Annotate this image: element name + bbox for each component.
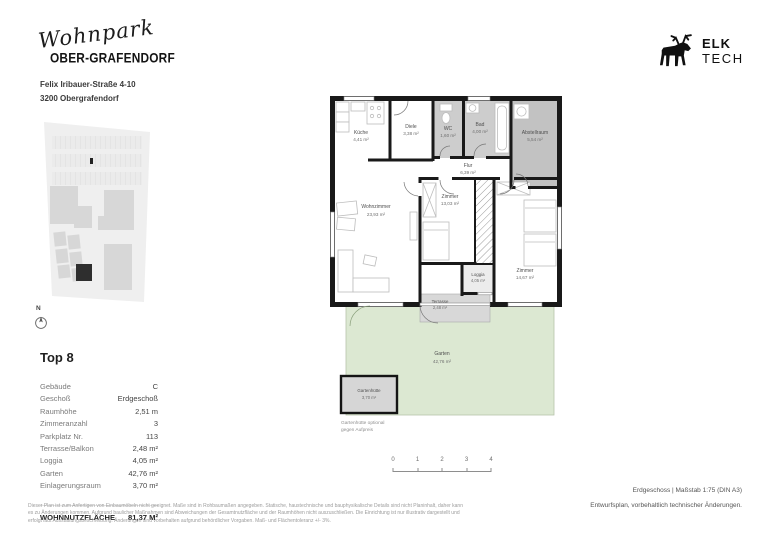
detail-row: Terrasse/Balkon2,48 m² <box>40 443 158 455</box>
stairwell <box>475 179 494 264</box>
address-line-2: 3200 Obergrafendorf <box>40 92 136 106</box>
label-loggia: Loggia <box>471 272 485 277</box>
elk-tech-wordmark: ELK TECH <box>702 36 744 66</box>
label-wohnzimmer: Wohnzimmer <box>361 204 391 210</box>
svg-text:4,05 m²: 4,05 m² <box>471 278 486 283</box>
svg-text:6,39 m²: 6,39 m² <box>460 170 476 175</box>
svg-text:42,76 m²: 42,76 m² <box>433 359 452 364</box>
detail-row: GeschoßErdgeschoß <box>40 393 158 405</box>
unit-details: Top 8 GebäudeC GeschoßErdgeschoß Raumhöh… <box>40 350 158 522</box>
svg-text:13,03 m²: 13,03 m² <box>441 201 460 206</box>
plan-info: Erdgeschoss | Maßstab 1:75 (DIN A3) <box>633 487 742 494</box>
elk-tech-logo: ELK TECH <box>652 28 762 76</box>
scale-bar: 0 1 2 3 4 <box>393 454 491 472</box>
project-address: Felix Iribauer-Straße 4-10 3200 Obergraf… <box>40 78 136 106</box>
floorplan-sheet: Wohnpark OBER-GRAFENDORF Felix Iribauer-… <box>0 0 770 544</box>
label-wc: WC <box>444 126 453 132</box>
svg-text:1,60 m²: 1,60 m² <box>440 133 456 138</box>
svg-text:2,48 m²: 2,48 m² <box>433 305 448 310</box>
parking-rows <box>52 136 142 185</box>
logo-line-tech: TECH <box>702 51 744 66</box>
label-zimmer-1: Zimmer <box>442 194 459 200</box>
logo-line-elk: ELK <box>702 36 744 51</box>
compass-label: N <box>36 305 41 312</box>
site-marker <box>90 158 93 164</box>
svg-text:4,41 m²: 4,41 m² <box>353 137 369 142</box>
address-line-1: Felix Iribauer-Straße 4-10 <box>40 78 136 92</box>
brand-name: OBER-GRAFENDORF <box>50 50 175 66</box>
label-terrasse: Terrasse <box>432 299 449 304</box>
svg-text:23,93 m²: 23,93 m² <box>367 212 386 217</box>
compass-icon <box>33 314 49 330</box>
detail-row: Einlagerungsraum3,70 m² <box>40 480 158 492</box>
svg-text:5,54 m²: 5,54 m² <box>527 137 543 142</box>
site-highlighted-unit <box>76 264 92 281</box>
label-abstellraum: Abstellraum <box>522 130 548 136</box>
svg-text:3,38 m²: 3,38 m² <box>403 131 419 136</box>
area-terrasse <box>420 294 490 322</box>
svg-text:14,67 m²: 14,67 m² <box>516 275 535 280</box>
detail-row: Zimmeranzahl3 <box>40 418 158 430</box>
label-bad: Bad <box>476 122 485 128</box>
label-kueche: Küche <box>354 130 368 136</box>
gartenhuette-note-line-1: Gartenhütte optional <box>341 420 384 426</box>
detail-row: Loggia4,05 m² <box>40 455 158 467</box>
label-diele: Diele <box>405 124 417 130</box>
plan-revision-note: Entwurfsplan, vorbehaltlich technischer … <box>590 502 742 509</box>
label-zimmer-2: Zimmer <box>517 268 534 274</box>
gartenhuette-note-line-2: gegen Aufpreis <box>341 427 374 433</box>
brand-script-wordmark: Wohnpark <box>37 15 156 53</box>
svg-text:3,70 m²: 3,70 m² <box>362 395 377 400</box>
label-gartenhuette: Gartenhütte <box>357 388 381 393</box>
elk-icon <box>652 32 698 72</box>
unit-title: Top 8 <box>40 350 158 365</box>
legal-disclaimer: Dieser Plan ist zum Anfertigen von Einba… <box>28 503 466 525</box>
site-plan <box>30 112 180 312</box>
floor-plan: Küche 4,41 m² Diele 3,38 m² WC 1,60 m² B… <box>328 92 564 438</box>
svg-text:4,00 m²: 4,00 m² <box>472 129 488 134</box>
label-flur: Flur <box>464 163 473 169</box>
detail-row: Garten42,76 m² <box>40 468 158 480</box>
label-garten: Garten <box>434 351 450 357</box>
detail-row: Raumhöhe2,51 m <box>40 406 158 418</box>
detail-row: GebäudeC <box>40 381 158 393</box>
detail-row: Parkplatz Nr.113 <box>40 431 158 443</box>
